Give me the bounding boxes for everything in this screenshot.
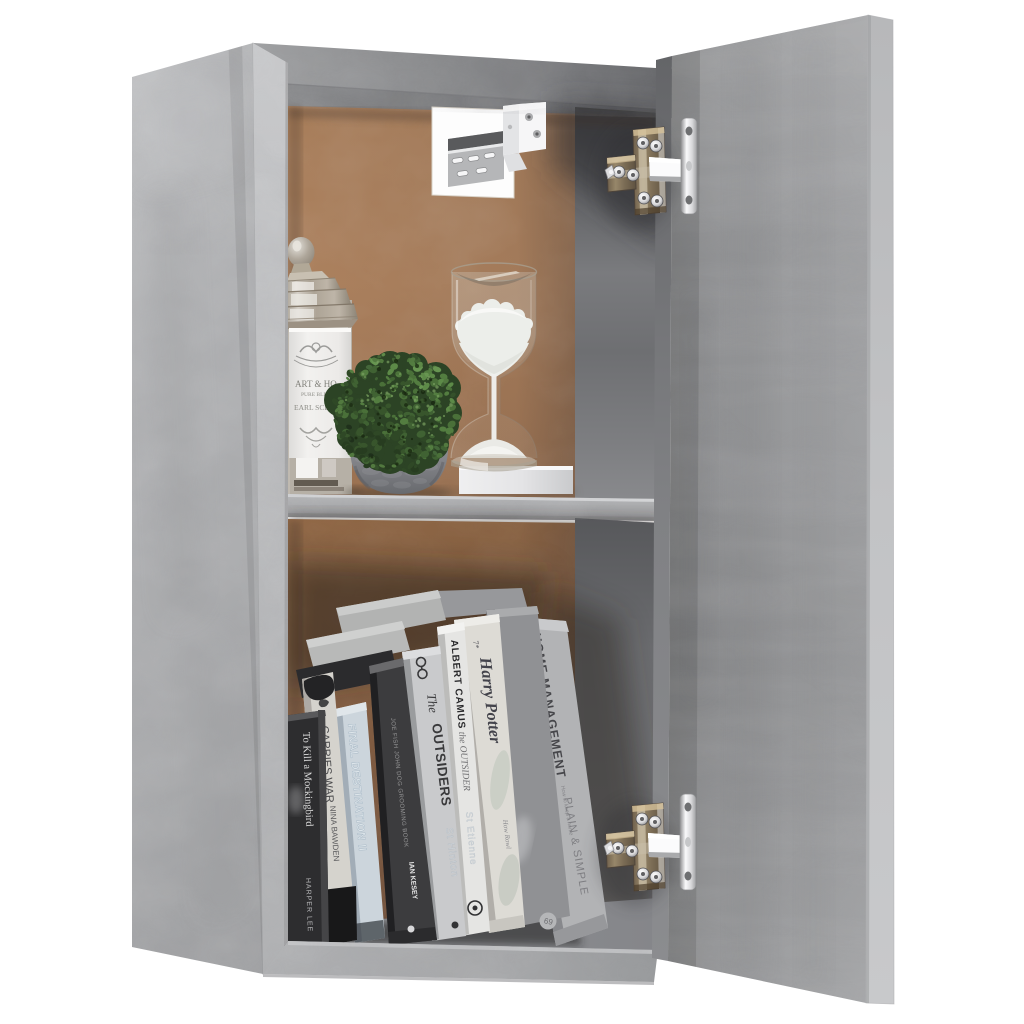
svg-text:The: The	[424, 693, 441, 714]
svg-text:7*: 7*	[471, 640, 481, 649]
svg-text:EARL SCE: EARL SCE	[294, 403, 329, 412]
svg-text:PURE BLE: PURE BLE	[301, 392, 327, 398]
